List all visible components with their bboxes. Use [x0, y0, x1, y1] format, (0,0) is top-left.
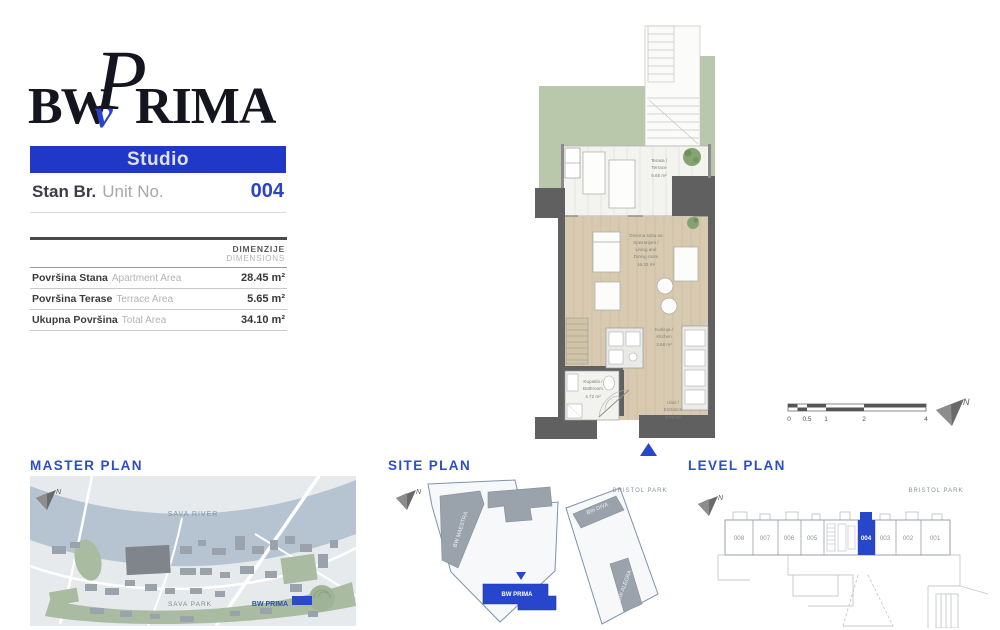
terrace-furniture: [609, 160, 635, 208]
unit-number-row: Stan Br. Unit No. 004: [30, 173, 286, 213]
logo-rima: RIMA: [135, 78, 275, 135]
master-plan-title: MASTER PLAN: [30, 458, 356, 473]
svg-text:003: 003: [880, 535, 891, 542]
stan-br-label: Stan Br.: [32, 182, 96, 202]
north-arrow-icon: N: [698, 495, 724, 516]
bathroom: Kupatilo / Bathroom 4.72 m²: [565, 371, 619, 420]
bathroom-label: Kupatilo / Bathroom 4.72 m²: [583, 379, 603, 399]
row-label-sr: Površina Stana: [32, 272, 108, 284]
scale-bar: 0 0.5 1 2 4: [786, 398, 936, 435]
svg-text:Terrace: Terrace: [651, 165, 667, 170]
bw-prima-highlighted-building: [292, 596, 312, 605]
row-label-en: Apartment Area: [112, 273, 181, 284]
lower-structure-outline: [718, 555, 988, 628]
svg-text:Kuhinja /: Kuhinja /: [655, 327, 674, 332]
bristol-park-label: BRISTOL PARK: [909, 488, 964, 494]
row-value: 5.65 m²: [247, 293, 285, 305]
north-arrow-icon: N: [396, 489, 422, 510]
level-plan-title: LEVEL PLAN: [688, 458, 992, 473]
svg-text:001: 001: [930, 535, 941, 542]
row-label-sr: Ukupna Površina: [32, 314, 118, 326]
header-dimensions: DIMENSIONS: [226, 254, 285, 263]
apartment-floor-plan: Terasa / Terrace 5.65 m²: [533, 20, 723, 465]
dimensions-table-header: DIMENZIJE DIMENSIONS: [30, 240, 287, 268]
master-plan-section: MASTER PLAN: [30, 458, 356, 630]
kitchen-counter: [606, 328, 643, 368]
svg-text:004: 004: [861, 535, 872, 542]
entrance-marker-icon: [640, 443, 657, 456]
kitchen-appliance-strip: [682, 326, 708, 410]
svg-text:Dining room: Dining room: [634, 254, 659, 259]
row-label-en: Terrace Area: [116, 294, 173, 305]
plant-icon: [687, 217, 699, 229]
svg-text:N: N: [416, 489, 422, 496]
svg-text:Kupatilo /: Kupatilo /: [583, 379, 603, 384]
svg-text:Kitchen: Kitchen: [656, 334, 672, 339]
bw-prima-logo: BWvPRIMA: [28, 18, 298, 114]
dimensions-table: DIMENZIJE DIMENSIONS Površina Stana Apar…: [30, 237, 287, 331]
table-row-total-area: Ukupna Površina Total Area 34.10 m²: [30, 310, 287, 331]
site-plan-title: SITE PLAN: [388, 458, 674, 473]
svg-text:3.73 m²: 3.73 m²: [665, 415, 681, 420]
unit-no-label: Unit No.: [102, 182, 163, 202]
unit-type-banner: Studio: [30, 146, 286, 173]
svg-text:Dnevna soba sa: Dnevna soba sa: [629, 233, 663, 238]
svg-text:N: N: [718, 495, 724, 502]
logo-blue-v: v: [95, 91, 113, 136]
table-row-apartment-area: Površina Stana Apartment Area 28.45 m²: [30, 268, 287, 289]
svg-text:Entrance: Entrance: [664, 407, 683, 412]
svg-text:Terasa /: Terasa /: [651, 158, 668, 163]
sava-park-label: SAVA PARK: [168, 601, 212, 608]
site-plan-section: SITE PLAN BW MAESTRA BW DIVA BW ALEGRA B…: [388, 458, 674, 630]
row-label-en: Total Area: [122, 315, 166, 326]
svg-text:16.32 m²: 16.32 m²: [637, 262, 656, 267]
highlighted-unit-balcony: [860, 512, 872, 520]
svg-text:1: 1: [824, 416, 828, 423]
row-label-sr: Površina Terase: [32, 293, 112, 305]
site-plan-map: BW MAESTRA BW DIVA BW ALEGRA BW PRIMA BR…: [388, 476, 674, 628]
svg-text:Living and: Living and: [636, 247, 657, 252]
level-plan-map: BRISTOL PARK N: [688, 476, 992, 628]
unit-card: Studio Stan Br. Unit No. 004: [30, 146, 286, 213]
svg-text:005: 005: [807, 535, 818, 542]
unit-type-label: Studio: [127, 149, 189, 171]
terrace-furniture: [583, 152, 605, 194]
bw-prima-map-label: BW PRIMA: [252, 601, 288, 608]
svg-text:002: 002: [903, 535, 914, 542]
svg-text:006: 006: [784, 535, 795, 542]
svg-text:4.72 m²: 4.72 m²: [585, 394, 601, 399]
svg-text:Ulaz /: Ulaz /: [667, 400, 679, 405]
svg-text:4: 4: [924, 416, 928, 423]
sava-river-label: SAVA RIVER: [168, 511, 219, 518]
svg-text:2: 2: [862, 416, 866, 423]
bristol-park-label: BRISTOL PARK: [613, 488, 668, 494]
table-row-terrace-area: Površina Terase Terrace Area 5.65 m²: [30, 289, 287, 310]
plant-icon: [683, 148, 701, 166]
floor-plan-page: BWvPRIMA Studio Stan Br. Unit No. 004 DI…: [0, 0, 1000, 630]
bw-prima-site-label: BW PRIMA: [502, 592, 534, 598]
row-value: 34.10 m²: [241, 314, 285, 326]
north-arrow-icon: N: [930, 394, 974, 437]
svg-text:Bathroom: Bathroom: [583, 386, 603, 391]
svg-text:N: N: [963, 397, 970, 407]
master-plan-map: SAVA RIVER SAVA PARK BW PRIMA N: [30, 476, 356, 626]
scale-bar-graphic: [788, 404, 926, 411]
kitchen-label: Kuhinja / Kitchen 3.68 m²: [655, 327, 674, 347]
balcony-bumps: [733, 512, 942, 520]
interior-stairs: [566, 318, 588, 364]
terrace-label: Terasa / Terrace 5.65 m²: [651, 158, 668, 178]
svg-text:3.68 m²: 3.68 m²: [656, 342, 672, 347]
unit-number-value: 004: [251, 180, 284, 203]
svg-text:007: 007: [760, 535, 771, 542]
svg-text:008: 008: [734, 535, 745, 542]
svg-text:trpezarijom /: trpezarijom /: [633, 240, 659, 245]
scale-bar-ticks: 0 0.5 1 2 4: [787, 416, 928, 423]
exterior-walkway-stairs: [645, 26, 700, 146]
header-dimenzije: DIMENZIJE: [232, 244, 285, 254]
row-value: 28.45 m²: [241, 272, 285, 284]
svg-text:5.65 m²: 5.65 m²: [651, 173, 667, 178]
svg-text:0: 0: [787, 416, 791, 423]
level-plan-section: LEVEL PLAN BRISTOL PARK N: [688, 458, 992, 630]
svg-text:0.5: 0.5: [802, 416, 811, 423]
